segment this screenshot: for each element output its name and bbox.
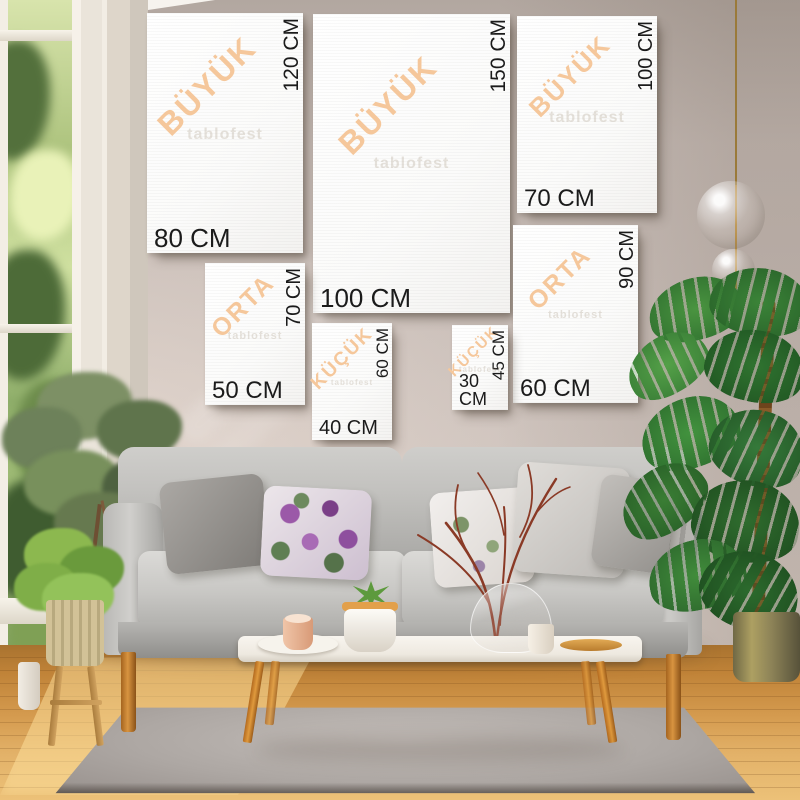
garden-foliage bbox=[10, 150, 72, 240]
canvas-width-label: 60 CM bbox=[520, 377, 591, 401]
sofa-leg bbox=[121, 652, 136, 732]
window-stile bbox=[0, 0, 8, 668]
canvas-category-label: BÜYÜK bbox=[495, 1, 645, 151]
canvas-height-label: 70 CM bbox=[284, 268, 304, 327]
watermark: tablofest bbox=[452, 365, 508, 374]
pillow-purple-floral bbox=[260, 485, 373, 581]
window-sash-bar bbox=[0, 324, 72, 333]
canvas-width-label: 30 CM bbox=[459, 372, 508, 408]
cup-small bbox=[528, 624, 554, 654]
canvas-category-label: ORTA bbox=[189, 253, 297, 361]
watermark: tablofest bbox=[312, 378, 392, 387]
watermark: tablofest bbox=[313, 155, 510, 173]
table-shadow bbox=[255, 736, 625, 762]
small-vase bbox=[18, 662, 40, 710]
plant-pot-tan bbox=[46, 600, 104, 666]
pendant-glass-globe-large bbox=[697, 181, 765, 249]
pillow-gray bbox=[158, 473, 271, 575]
canvas-width-label: 100 CM bbox=[320, 285, 411, 311]
canvas-40x60: KÜÇÜK 60 CM 40 CM tablofest bbox=[312, 323, 392, 440]
room-scene: BÜYÜK 120 CM 80 CM tablofest BÜYÜK 150 C… bbox=[0, 0, 800, 800]
monstera-pot bbox=[733, 612, 800, 682]
canvas-80x120: BÜYÜK 120 CM 80 CM tablofest bbox=[147, 13, 303, 253]
canvas-70x100: BÜYÜK 100 CM 70 CM tablofest bbox=[517, 16, 657, 213]
cup-rim bbox=[285, 614, 311, 623]
canvas-width-label: 70 CM bbox=[524, 187, 595, 211]
canvas-height-label: 60 CM bbox=[374, 328, 391, 378]
window-sash-bar bbox=[0, 30, 72, 41]
watermark: tablofest bbox=[205, 330, 305, 342]
canvas-width-label: 80 CM bbox=[154, 225, 231, 251]
stool-crossbar bbox=[50, 700, 102, 705]
canvas-50x70: ORTA 70 CM 50 CM tablofest bbox=[205, 263, 305, 405]
canvas-width-label: 50 CM bbox=[212, 379, 283, 403]
planter-bowl bbox=[344, 609, 396, 652]
watermark: tablofest bbox=[147, 126, 303, 144]
watermark: tablofest bbox=[517, 109, 657, 127]
canvas-30x45: KÜÇÜK 45 CM 30 CM tablofest bbox=[452, 325, 508, 410]
canvas-width-label: 40 CM bbox=[319, 418, 378, 438]
garden-foliage bbox=[0, 250, 65, 380]
pendant-wire bbox=[735, 0, 737, 185]
canvas-100x150: BÜYÜK 150 CM 100 CM tablofest bbox=[313, 14, 510, 313]
canvas-height-label: 100 CM bbox=[636, 21, 656, 91]
